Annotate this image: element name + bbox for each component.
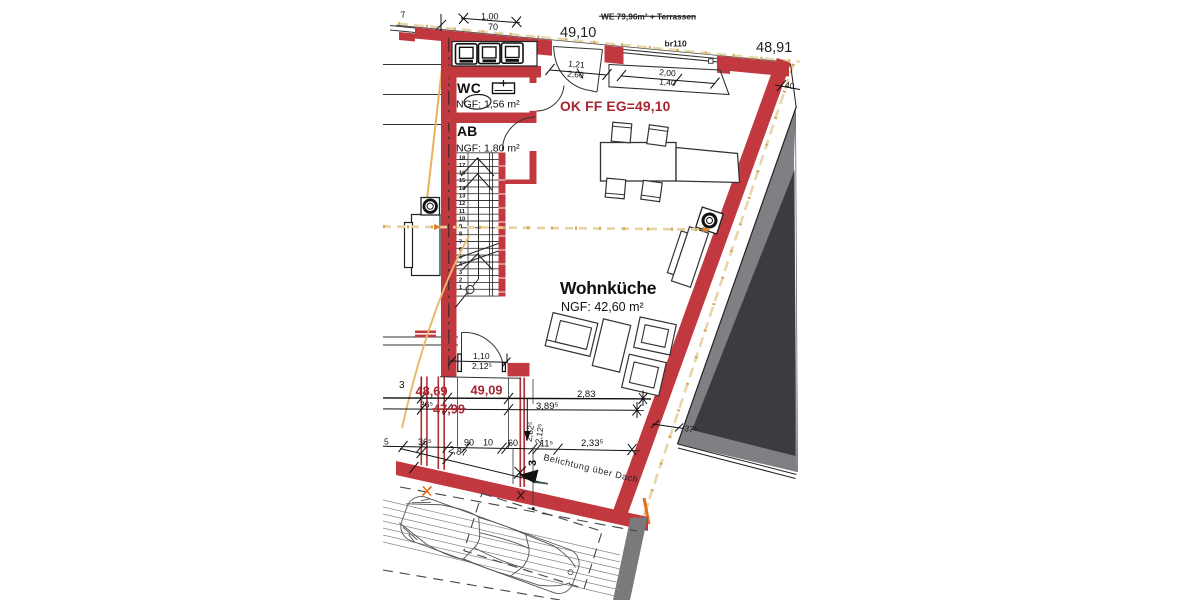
svg-text:br110: br110	[665, 39, 687, 49]
svg-text:8: 8	[459, 232, 462, 238]
svg-text:1,40: 1,40	[659, 77, 677, 88]
svg-text:1,00: 1,00	[481, 12, 499, 22]
svg-text:40: 40	[784, 80, 795, 92]
svg-text:2,60: 2,60	[567, 69, 585, 80]
svg-text:2,12⁵: 2,12⁵	[472, 361, 492, 371]
svg-text:NGF: 42,60 m²: NGF: 42,60 m²	[561, 300, 644, 314]
svg-text:2: 2	[459, 277, 462, 283]
svg-text:WC: WC	[457, 80, 481, 96]
svg-text:37⁵: 37⁵	[684, 423, 698, 435]
svg-text:49,10: 49,10	[560, 25, 596, 41]
svg-text:13: 13	[459, 194, 465, 200]
svg-text:1,10: 1,10	[473, 351, 490, 361]
svg-text:3: 3	[399, 380, 405, 391]
svg-text:AB: AB	[457, 123, 477, 139]
svg-text:36⁵: 36⁵	[420, 400, 433, 410]
svg-text:Wohnküche: Wohnküche	[560, 278, 657, 298]
svg-text:70: 70	[488, 22, 498, 32]
svg-text:3,89⁵: 3,89⁵	[536, 401, 558, 412]
svg-text:1: 1	[459, 285, 462, 291]
svg-text:10: 10	[483, 438, 493, 448]
svg-text:15: 15	[459, 178, 465, 184]
svg-text:17: 17	[459, 163, 465, 169]
svg-text:NGF: 1,56 m²: NGF: 1,56 m²	[456, 99, 520, 111]
svg-text:3: 3	[459, 270, 462, 276]
svg-text:48,91: 48,91	[756, 40, 792, 56]
svg-text:60: 60	[508, 438, 518, 448]
svg-text:90: 90	[464, 437, 474, 447]
svg-text:18: 18	[459, 155, 465, 161]
svg-text:5: 5	[384, 437, 389, 447]
svg-text:12: 12	[459, 201, 465, 207]
svg-text:2,33⁵: 2,33⁵	[581, 438, 603, 449]
svg-text:7: 7	[459, 239, 462, 245]
svg-text:10: 10	[459, 216, 465, 222]
svg-text:OK FF EG=49,10: OK FF EG=49,10	[560, 99, 671, 114]
svg-text:11: 11	[459, 209, 465, 215]
svg-text:48,69: 48,69	[416, 384, 448, 399]
svg-text:49,09: 49,09	[471, 383, 503, 398]
svg-text:36⁵: 36⁵	[418, 437, 432, 447]
svg-text:14: 14	[459, 186, 466, 192]
svg-text:16: 16	[459, 171, 465, 177]
svg-text:NGF: 1,80 m²: NGF: 1,80 m²	[456, 143, 520, 155]
svg-text:3: 3	[527, 460, 539, 466]
svg-text:2,83: 2,83	[577, 389, 596, 400]
